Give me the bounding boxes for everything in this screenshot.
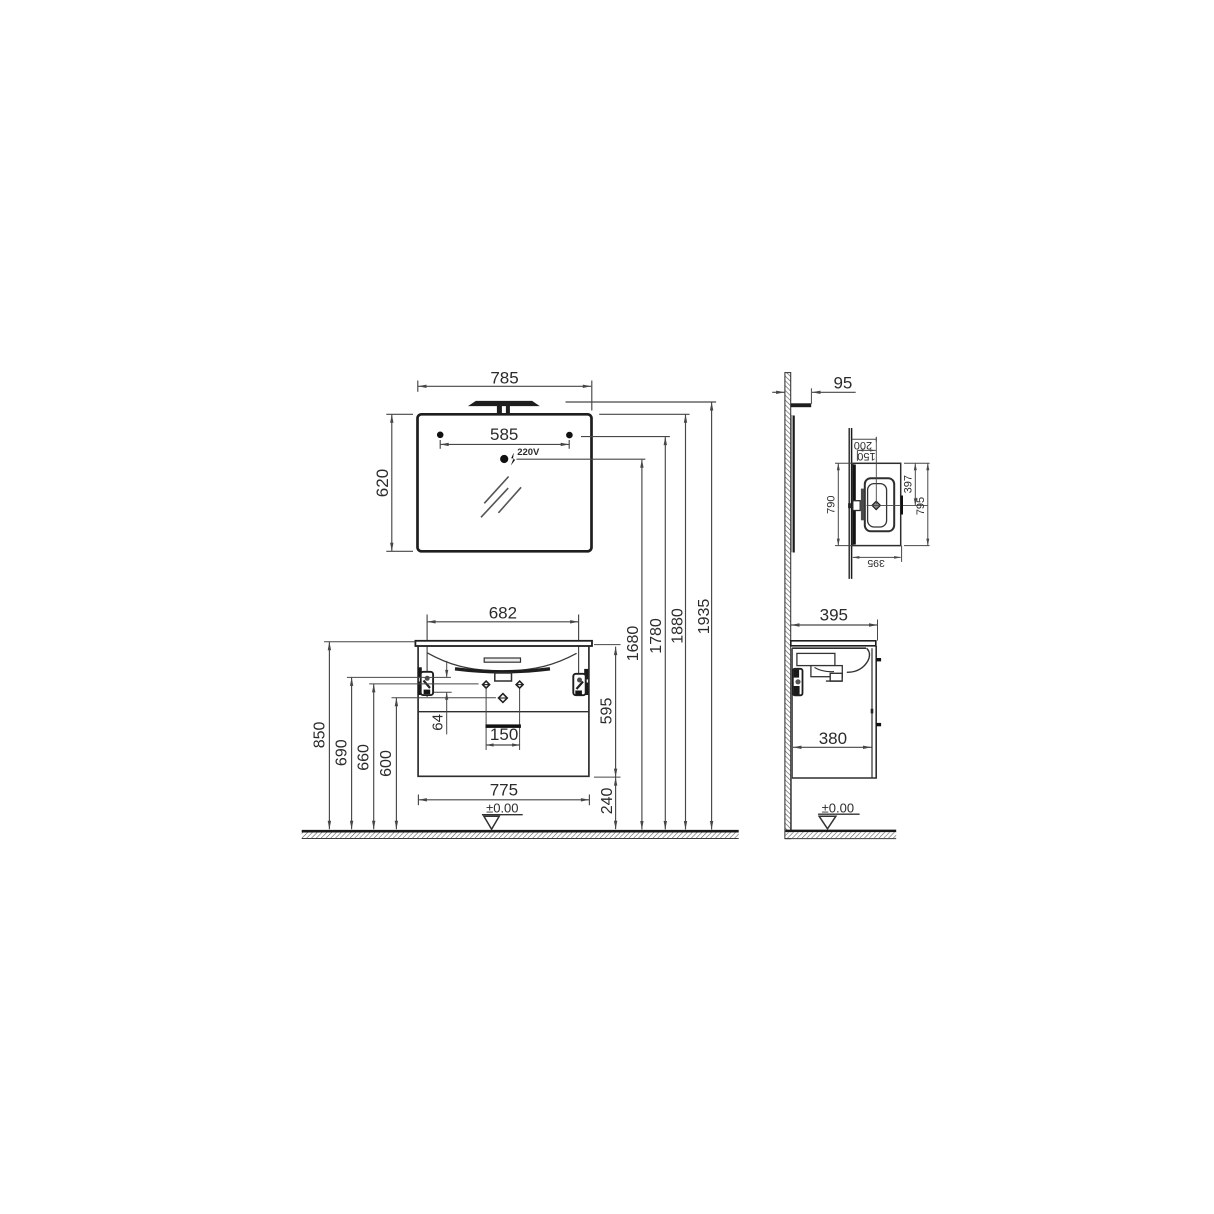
svg-text:682: 682 <box>489 604 517 623</box>
svg-text:220V: 220V <box>517 447 540 458</box>
svg-text:±0.00: ±0.00 <box>822 801 854 816</box>
svg-text:95: 95 <box>833 374 852 393</box>
svg-text:795: 795 <box>915 497 927 515</box>
svg-text:±0.00: ±0.00 <box>486 801 518 816</box>
svg-text:1780: 1780 <box>648 618 665 654</box>
svg-text:395: 395 <box>867 557 885 569</box>
svg-text:585: 585 <box>490 425 518 444</box>
svg-text:380: 380 <box>819 729 847 748</box>
svg-text:395: 395 <box>820 605 848 624</box>
svg-text:690: 690 <box>333 739 350 766</box>
svg-text:600: 600 <box>378 750 395 777</box>
svg-text:397: 397 <box>902 475 914 493</box>
svg-text:64: 64 <box>429 714 446 731</box>
svg-text:790: 790 <box>826 496 838 514</box>
svg-text:1935: 1935 <box>696 599 713 635</box>
svg-text:620: 620 <box>373 469 392 497</box>
svg-text:660: 660 <box>355 744 372 771</box>
svg-text:775: 775 <box>490 780 518 799</box>
svg-text:1680: 1680 <box>625 626 642 662</box>
svg-text:150: 150 <box>857 450 875 462</box>
svg-text:785: 785 <box>490 369 518 388</box>
svg-text:595: 595 <box>598 698 615 725</box>
svg-text:200: 200 <box>854 439 872 451</box>
svg-text:150: 150 <box>490 725 518 744</box>
svg-text:1880: 1880 <box>670 608 687 644</box>
svg-text:850: 850 <box>311 721 328 748</box>
svg-text:240: 240 <box>599 787 616 814</box>
